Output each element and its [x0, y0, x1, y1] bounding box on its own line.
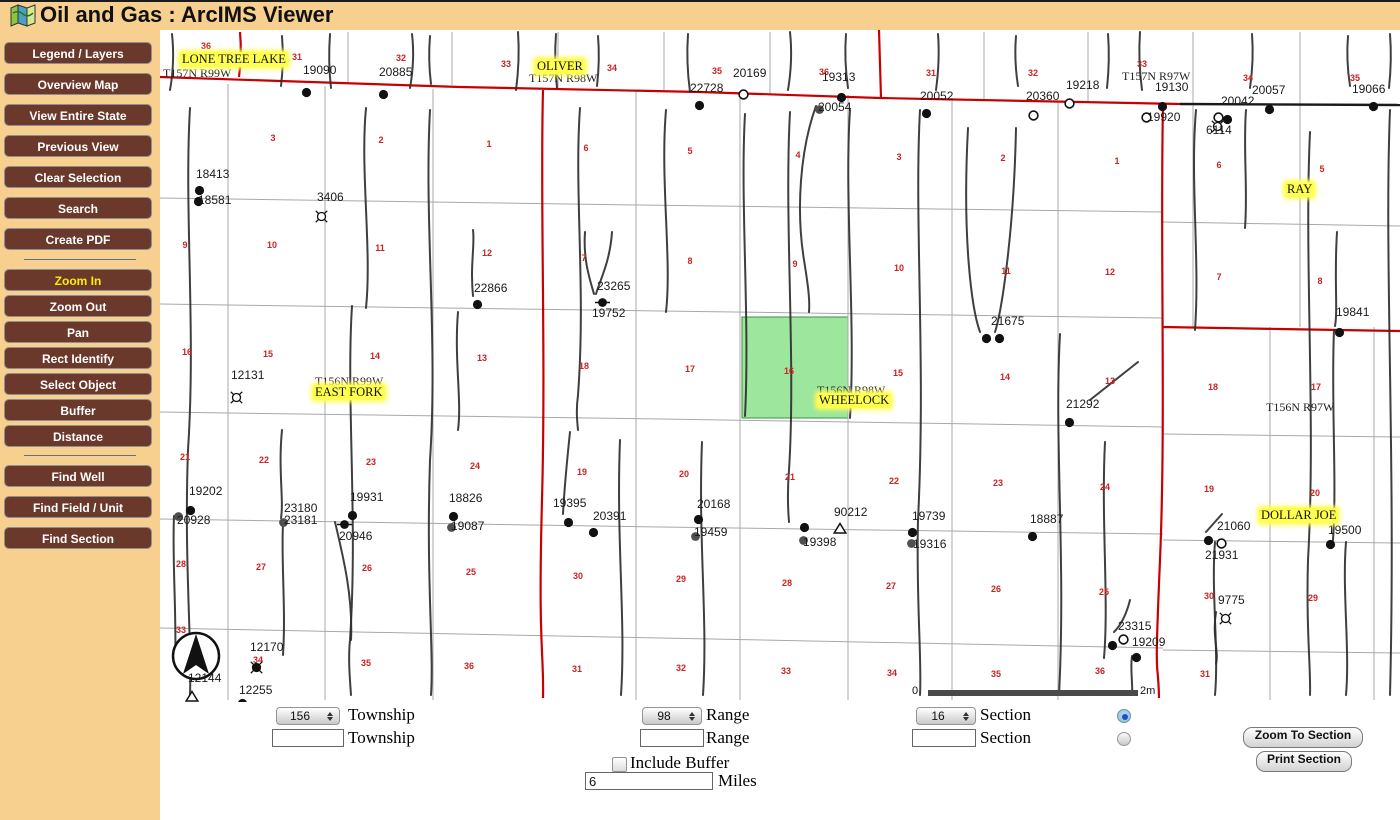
sidebar-button-buffer[interactable]: Buffer: [4, 399, 152, 421]
section-input[interactable]: [912, 729, 976, 747]
sidebar-button-previous-view[interactable]: Previous View: [4, 135, 152, 157]
sidebar-button-zoom-in[interactable]: Zoom In: [4, 269, 152, 291]
sidebar-button-find-well[interactable]: Find Well: [4, 465, 152, 487]
well-label: 23315: [1118, 619, 1151, 633]
map-app-icon: [10, 4, 36, 32]
section-number: 18: [579, 361, 589, 371]
well-label: 20928: [177, 513, 210, 527]
well-label: 21292: [1066, 397, 1099, 411]
well-label: 22728: [690, 81, 723, 95]
section-number: 6: [1216, 160, 1221, 170]
section-number: 12: [1105, 267, 1115, 277]
well-label: 20054: [818, 100, 851, 114]
section-number: 2: [378, 135, 383, 145]
section-number: 28: [782, 578, 792, 588]
well-label: 19313: [822, 70, 855, 84]
section-number: 17: [685, 364, 695, 374]
section-number: 22: [259, 455, 269, 465]
print-section-button[interactable]: Print Section: [1256, 751, 1352, 772]
well-label: 20885: [379, 65, 412, 79]
well-label: 9775: [1218, 593, 1245, 607]
well-label: 19202: [189, 484, 222, 498]
sidebar-button-overview-map[interactable]: Overview Map: [4, 73, 152, 95]
section-number: 24: [470, 461, 480, 471]
section-number: 5: [687, 146, 692, 156]
section-number: 31: [292, 52, 302, 62]
miles-label: Miles: [718, 771, 757, 791]
well-label: 18887: [1030, 512, 1063, 526]
include-buffer-label: Include Buffer: [630, 753, 729, 773]
section-number: 33: [501, 59, 511, 69]
township-select[interactable]: 156: [276, 707, 340, 725]
section-input-label: Section: [980, 728, 1031, 748]
sidebar-button-view-entire-state[interactable]: View Entire State: [4, 104, 152, 126]
well-label: 20052: [920, 89, 953, 103]
section-number: 7: [1216, 272, 1221, 282]
section-number: 3: [270, 133, 275, 143]
section-number: 3: [896, 152, 901, 162]
section-number: 29: [1308, 593, 1318, 603]
section-number: 14: [1000, 372, 1010, 382]
section-number: 1: [486, 139, 491, 149]
township-label-t157n-r99w: T157N R99W: [163, 66, 231, 81]
sidebar-button-legend-layers[interactable]: Legend / Layers: [4, 42, 152, 64]
section-input-radio[interactable]: [1117, 732, 1131, 746]
well-label: 12170: [250, 640, 283, 654]
section-number: 14: [370, 351, 380, 361]
sidebar-button-rect-identify[interactable]: Rect Identify: [4, 347, 152, 369]
section-number: 32: [396, 53, 406, 63]
well-label: 19066: [1352, 82, 1385, 96]
section-number: 36: [1095, 666, 1105, 676]
section-number: 13: [1105, 376, 1115, 386]
section-number: 19: [1204, 484, 1214, 494]
section-number: 11: [375, 243, 385, 253]
field-label-lone-tree-lake: LONE TREE LAKE: [180, 52, 288, 67]
section-number: 31: [1200, 669, 1210, 679]
select-stepper-icon: [959, 712, 975, 721]
section-number: 34: [253, 655, 263, 665]
well-label: 19090: [303, 63, 336, 77]
select-stepper-icon: [685, 712, 701, 721]
range-input[interactable]: [640, 729, 704, 747]
field-label-dollar-joe: DOLLAR JOE: [1259, 508, 1338, 523]
sidebar: Legend / LayersOverview MapView Entire S…: [0, 30, 160, 820]
section-number: 35: [712, 66, 722, 76]
section-number: 1: [1114, 156, 1119, 166]
scale-bar-zero-label: 0: [912, 685, 918, 697]
well-label: 19087: [451, 519, 484, 533]
section-number: 35: [361, 658, 371, 668]
section-number: 2: [1000, 153, 1005, 163]
miles-input[interactable]: [585, 772, 713, 790]
section-number: 15: [263, 349, 273, 359]
sidebar-button-pan[interactable]: Pan: [4, 321, 152, 343]
well-label: 18413: [196, 167, 229, 181]
well-label: 12131: [231, 368, 264, 382]
sidebar-divider: [24, 455, 136, 457]
section-number: 20: [679, 469, 689, 479]
section-number: 6: [583, 143, 588, 153]
township-select-label: Township: [348, 705, 415, 725]
well-label: 3406: [317, 190, 344, 204]
section-number: 25: [1099, 587, 1109, 597]
scale-bar-max-label: 2m: [1140, 685, 1155, 697]
township-input[interactable]: [272, 729, 344, 747]
map-viewport[interactable]: LONE TREE LAKEOLIVERRAYEAST FORKWHEELOCK…: [160, 30, 1400, 702]
well-label: 19739: [912, 509, 945, 523]
top-border-line: [0, 0, 1400, 2]
section-number: 23: [366, 457, 376, 467]
well-label: 20946: [339, 529, 372, 543]
section-number: 32: [1028, 68, 1038, 78]
section-number: 21: [180, 452, 190, 462]
well-label: 19459: [694, 525, 727, 539]
well-label: 90212: [834, 505, 867, 519]
well-label: 19920: [1147, 110, 1180, 124]
section-number: 34: [1243, 73, 1253, 83]
section-number: 31: [572, 664, 582, 674]
well-label: 19500: [1328, 523, 1361, 537]
well-label: 20360: [1026, 89, 1059, 103]
section-number: 19: [577, 467, 587, 477]
well-label: 19209: [1132, 635, 1165, 649]
section-number: 31: [926, 68, 936, 78]
section-number: 32: [676, 663, 686, 673]
section-number: 20: [1310, 488, 1320, 498]
well-label: 20169: [733, 66, 766, 80]
well-label: 23265: [597, 279, 630, 293]
section-number: 30: [1204, 591, 1214, 601]
section-number: 5: [1319, 164, 1324, 174]
section-number: 10: [894, 263, 904, 273]
well-label: 21675: [991, 314, 1024, 328]
section-number: 26: [991, 584, 1001, 594]
section-select-radio-selected[interactable]: [1117, 709, 1131, 723]
well-label: 22866: [474, 281, 507, 295]
sidebar-button-select-object[interactable]: Select Object: [4, 373, 152, 395]
well-label: 20168: [697, 497, 730, 511]
sidebar-button-search[interactable]: Search: [4, 197, 152, 219]
field-label-east-fork: EAST FORK: [313, 385, 385, 400]
field-label-ray: RAY: [1285, 182, 1314, 197]
well-label: 6114: [1206, 123, 1232, 137]
section-number: 13: [477, 353, 487, 363]
section-number: 17: [1311, 382, 1321, 392]
section-number: 9: [792, 259, 797, 269]
section-number: 23: [993, 478, 1003, 488]
section-number: 16: [182, 347, 192, 357]
well-label: 20391: [593, 509, 626, 523]
section-number: 34: [607, 63, 617, 73]
section-number: 15: [893, 368, 903, 378]
well-label: 19130: [1155, 80, 1188, 94]
township-label-t156n-r97w: T156N R97W: [1266, 400, 1334, 415]
sidebar-divider: [24, 259, 136, 261]
well-label: 21060: [1217, 519, 1250, 533]
range-select[interactable]: 98: [642, 707, 702, 725]
section-number: 25: [466, 567, 476, 577]
section-number: 33: [1137, 59, 1147, 69]
section-number: 26: [362, 563, 372, 573]
well-label: 20057: [1252, 83, 1285, 97]
well-label: 18581: [198, 193, 231, 207]
sidebar-button-find-field-unit[interactable]: Find Field / Unit: [4, 496, 152, 518]
section-number: 8: [687, 256, 692, 266]
section-number: 21: [785, 472, 795, 482]
well-label: 23181: [284, 513, 317, 527]
well-label: 18826: [449, 491, 482, 505]
well-label: 19398: [803, 535, 836, 549]
well-label: 21931: [1205, 548, 1238, 562]
section-number: 33: [176, 625, 186, 635]
section-number: 7: [581, 253, 586, 263]
scale-bar: [928, 690, 1138, 696]
section-number: 35: [991, 669, 1001, 679]
section-number: 30: [573, 571, 583, 581]
section-number: 27: [886, 581, 896, 591]
section-number: 29: [676, 574, 686, 584]
app-header: Oil and Gas : ArcIMS Viewer: [0, 0, 1400, 30]
section-number: 4: [795, 150, 800, 160]
section-number: 27: [256, 562, 266, 572]
well-label: 19316: [913, 537, 946, 551]
select-stepper-icon: [323, 712, 339, 721]
well-label: 12255: [239, 683, 272, 697]
well-label: 19841: [1336, 305, 1369, 319]
sidebar-button-distance[interactable]: Distance: [4, 425, 152, 447]
section-number: 36: [464, 661, 474, 671]
well-label: 19395: [553, 496, 586, 510]
section-number: 24: [1100, 482, 1110, 492]
section-number: 8: [1317, 276, 1322, 286]
section-number: 9: [182, 240, 187, 250]
sidebar-button-find-section[interactable]: Find Section: [4, 527, 152, 549]
include-buffer-checkbox[interactable]: [612, 757, 627, 772]
field-label-oliver: OLIVER: [535, 59, 585, 74]
range-input-label: Range: [706, 728, 749, 748]
section-number: 22: [889, 476, 899, 486]
sidebar-button-clear-selection[interactable]: Clear Selection: [4, 166, 152, 188]
section-number: 12: [482, 248, 492, 258]
zoom-to-section-button[interactable]: Zoom To Section: [1243, 727, 1363, 748]
section-number: 10: [267, 240, 277, 250]
field-label-wheelock: WHEELOCK: [817, 393, 891, 408]
well-label: 12144: [188, 671, 221, 685]
well-label: 19931: [350, 490, 383, 504]
section-number: 34: [887, 668, 897, 678]
section-number: 36: [201, 41, 211, 51]
section-number: 33: [781, 666, 791, 676]
well-label: 20042: [1221, 94, 1254, 108]
section-select-label: Section: [980, 705, 1031, 725]
sidebar-button-zoom-out[interactable]: Zoom Out: [4, 295, 152, 317]
township-input-label: Township: [348, 728, 415, 748]
section-number: 28: [176, 559, 186, 569]
section-number: 16: [784, 366, 794, 376]
section-number: 18: [1208, 382, 1218, 392]
well-label: 19752: [592, 306, 625, 320]
range-select-label: Range: [706, 705, 749, 725]
well-label: 19218: [1066, 78, 1099, 92]
section-number: 11: [1001, 266, 1011, 276]
page-title: Oil and Gas : ArcIMS Viewer: [40, 2, 333, 28]
section-select[interactable]: 16: [916, 707, 976, 725]
sidebar-button-create-pdf[interactable]: Create PDF: [4, 228, 152, 250]
